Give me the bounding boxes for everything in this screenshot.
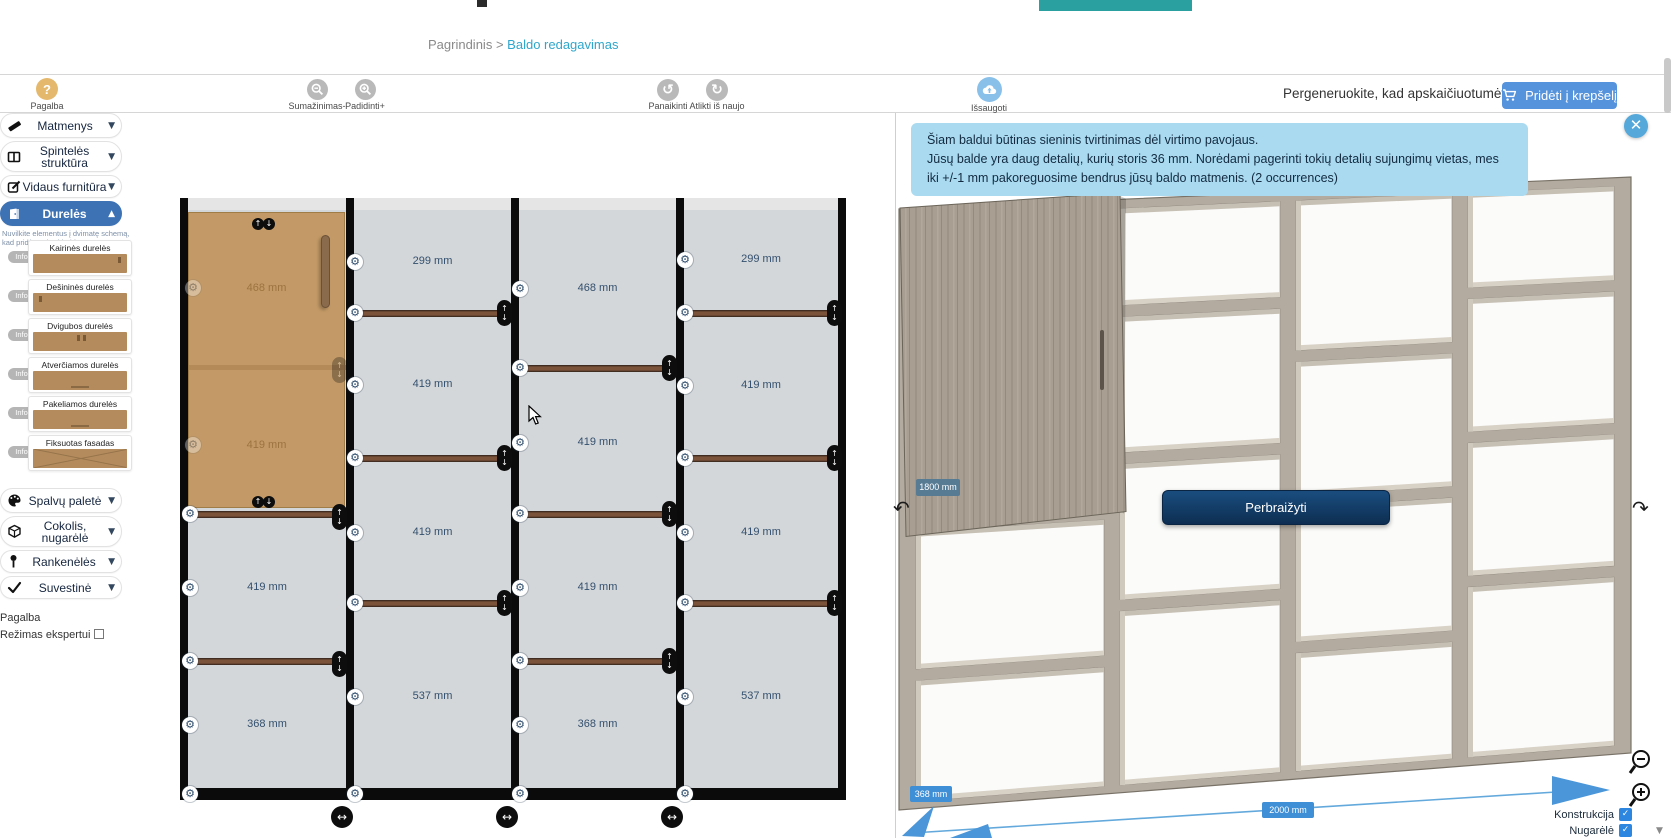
gear-icon[interactable]: ⚙ [347, 689, 363, 705]
shelf-move-control[interactable]: ↑↓ [497, 590, 512, 616]
notice-line-2: Jūsų balde yra daug detalių, kurių stori… [927, 150, 1512, 188]
back-panel-checkbox[interactable]: ✓ [1619, 824, 1632, 837]
width-dimension-badge: 2000 mm [1262, 802, 1314, 818]
gear-icon[interactable]: ⚙ [512, 717, 528, 733]
gear-icon[interactable]: ⚙ [347, 786, 363, 802]
notice-line-1: Šiam baldui būtinas sieninis tvirtinimas… [927, 131, 1512, 150]
gear-icon[interactable]: ⚙ [512, 281, 528, 297]
shelf[interactable] [519, 511, 676, 518]
compartment-wall [916, 532, 921, 669]
compartment-wall [1296, 362, 1301, 496]
warning-notice: Šiam baldui būtinas sieninis tvirtinimas… [911, 123, 1528, 196]
gear-icon[interactable]: ⚙ [185, 437, 201, 453]
shelf[interactable] [519, 658, 676, 665]
gear-icon[interactable]: ⚙ [182, 717, 198, 733]
shelf-move-control[interactable]: ↑↓ [662, 355, 677, 381]
gear-icon[interactable]: ⚙ [677, 786, 693, 802]
gear-icon[interactable]: ⚙ [347, 254, 363, 270]
shelf[interactable] [354, 600, 511, 607]
gear-icon[interactable]: ⚙ [185, 280, 201, 296]
compartment-wall [1468, 587, 1473, 757]
gear-icon[interactable]: ⚙ [347, 377, 363, 393]
door-seam [189, 365, 346, 370]
gear-icon[interactable]: ⚙ [182, 786, 198, 802]
shelf[interactable] [188, 511, 346, 518]
back-panel-label: Nugarėlė [1569, 825, 1614, 837]
shelf[interactable] [519, 365, 676, 372]
shelf[interactable] [188, 658, 346, 665]
shelf[interactable] [354, 455, 511, 462]
compartment [916, 520, 1104, 669]
gear-icon[interactable]: ⚙ [677, 252, 693, 268]
shelf-move-control[interactable]: ↑↓ [332, 504, 347, 530]
shelf-move-control[interactable]: ↑↓ [827, 300, 842, 326]
gear-icon[interactable]: ⚙ [347, 450, 363, 466]
gear-icon[interactable]: ⚙ [677, 595, 693, 611]
gear-icon[interactable]: ⚙ [512, 580, 528, 596]
compartment-wall [1296, 653, 1301, 771]
gear-icon[interactable]: ⚙ [677, 450, 693, 466]
compartment [1468, 577, 1614, 757]
toggle-dropdown-icon[interactable]: ▼ [1656, 827, 1663, 836]
gear-icon[interactable]: ⚙ [677, 378, 693, 394]
gear-icon[interactable]: ⚙ [347, 525, 363, 541]
compartment-wall [1468, 443, 1473, 576]
compartment-wall [1296, 508, 1301, 642]
construction-checkbox[interactable]: ✓ [1619, 808, 1632, 821]
gear-icon[interactable]: ⚙ [677, 305, 693, 321]
dimension-arrow-partial [950, 824, 992, 838]
compartment [1296, 353, 1452, 496]
gear-icon[interactable]: ⚙ [512, 435, 528, 451]
compartment [1120, 309, 1280, 453]
viewer-zoom-out-icon[interactable] [1628, 748, 1656, 776]
compartment [1468, 292, 1614, 432]
shelf[interactable] [684, 600, 838, 607]
gear-icon[interactable]: ⚙ [512, 360, 528, 376]
column-width-control[interactable]: ↔ [661, 806, 683, 828]
compartment-wall [1296, 201, 1301, 351]
compartment [1468, 434, 1614, 576]
close-icon[interactable]: ✕ [1624, 114, 1648, 138]
depth-dimension-badge: 368 mm [910, 786, 952, 802]
viewer-zoom-in-icon[interactable] [1628, 781, 1656, 809]
column-width-control[interactable]: ↔ [331, 806, 353, 828]
app-window: Pagrindinis > Baldo redagavimas ? Pagalb… [0, 0, 1671, 838]
rotate-left-icon[interactable]: ↶ [893, 498, 910, 518]
gear-icon[interactable]: ⚙ [677, 689, 693, 705]
compartment [1296, 642, 1452, 771]
construction-label: Konstrukcija [1554, 809, 1614, 821]
back-panel-toggle[interactable]: Nugarėlė ✓ [1460, 824, 1652, 837]
compartment [1120, 201, 1280, 305]
gear-icon[interactable]: ⚙ [512, 786, 528, 802]
gear-icon[interactable]: ⚙ [677, 525, 693, 541]
door-handle [321, 235, 330, 308]
compartment-wall [1468, 299, 1473, 432]
shelf[interactable] [354, 310, 511, 317]
gear-icon[interactable]: ⚙ [182, 580, 198, 596]
compartment [1120, 600, 1280, 785]
door-handle-3d [1100, 330, 1104, 390]
shelf-move-control[interactable]: ↑↓ [332, 651, 347, 677]
compartment-wall [1120, 611, 1125, 785]
door-move-control[interactable]: ↑↓ [253, 218, 275, 230]
height-dimension-badge: 1800 mm [916, 479, 960, 496]
shelf-move-control[interactable]: ↑↓ [497, 300, 512, 326]
dimension-arrow-right [1552, 776, 1610, 805]
redraw-button[interactable]: Perbraižyti [1162, 490, 1390, 525]
gear-icon[interactable]: ⚙ [347, 595, 363, 611]
shelf-move-control[interactable]: ↑↓ [827, 445, 842, 471]
compartment-wall [1468, 193, 1473, 288]
shelf[interactable] [684, 310, 838, 317]
gear-icon[interactable]: ⚙ [512, 653, 528, 669]
column-width-control[interactable]: ↔ [496, 806, 518, 828]
shelf-move-control[interactable]: ↑↓ [497, 445, 512, 471]
compartment [1468, 186, 1614, 287]
shelf-move-control[interactable]: ↑↓ [662, 501, 677, 527]
compartment [916, 667, 1104, 801]
door-move-control[interactable]: ↑↓ [253, 496, 275, 508]
gear-icon[interactable]: ⚙ [182, 506, 198, 522]
rotate-right-icon[interactable]: ↷ [1632, 498, 1649, 518]
gear-icon[interactable]: ⚙ [182, 653, 198, 669]
compartment [1120, 455, 1280, 600]
compartment-wall [916, 681, 921, 802]
shelf-move-control[interactable]: ↑↓ [827, 590, 842, 616]
gear-icon[interactable]: ⚙ [347, 305, 363, 321]
shelf-move-control[interactable]: ↑↓ [662, 648, 677, 674]
door-overlay-2d[interactable]: 468 mm 419 mm ↑↓ ↑↓ [188, 212, 345, 508]
compartment [1296, 194, 1452, 351]
shelf[interactable] [684, 455, 838, 462]
mouse-cursor [528, 405, 543, 426]
cell-dimension-under-door: 419 mm [189, 439, 344, 451]
gear-icon[interactable]: ⚙ [512, 506, 528, 522]
shelf-move-control[interactable]: ↑↓ [332, 357, 347, 383]
construction-toggle[interactable]: Konstrukcija ✓ [1460, 808, 1652, 821]
